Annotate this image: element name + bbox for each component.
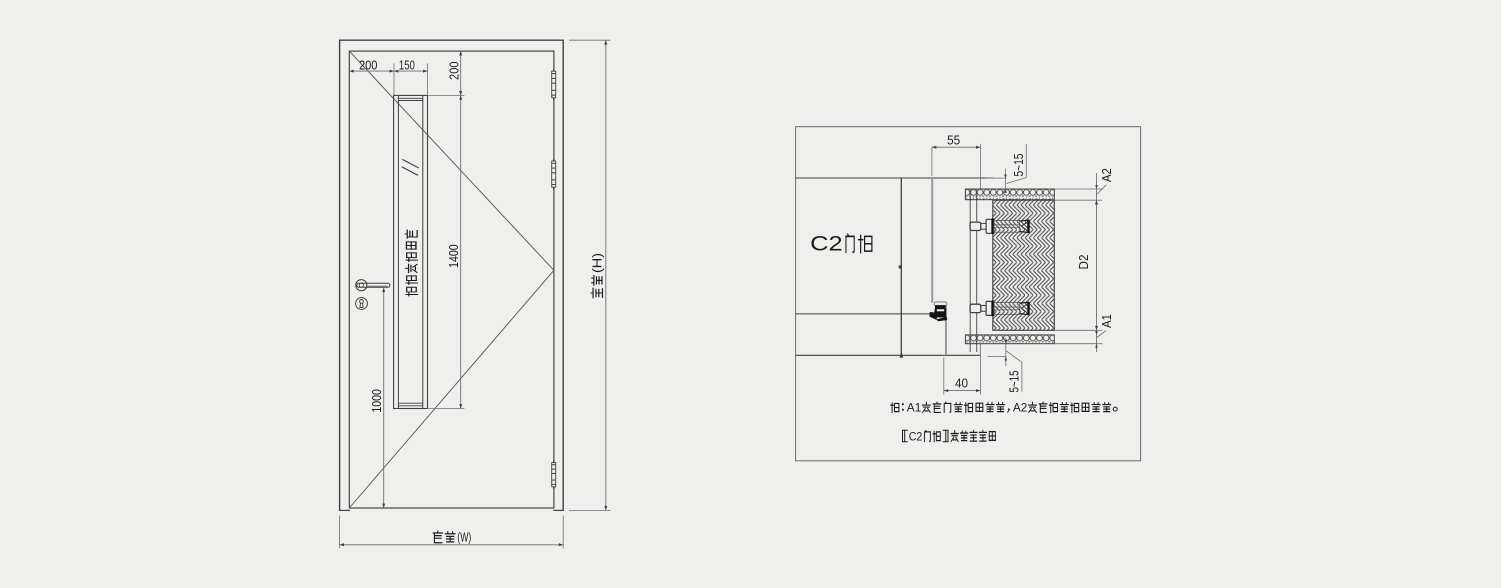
- svg-text:D2: D2: [1077, 254, 1091, 269]
- svg-text:1000: 1000: [369, 389, 384, 413]
- svg-text:40: 40: [955, 376, 968, 390]
- svg-text:(W): (W): [457, 529, 471, 544]
- svg-text:1400: 1400: [446, 244, 461, 268]
- svg-text:2: 2: [1021, 401, 1028, 415]
- svg-text:5~15: 5~15: [1012, 153, 1026, 176]
- svg-text:1: 1: [915, 401, 922, 415]
- svg-text:(H): (H): [590, 253, 605, 273]
- svg-text:C2: C2: [810, 233, 843, 256]
- svg-text:5~15: 5~15: [1008, 370, 1022, 392]
- svg-text:C2: C2: [909, 429, 923, 443]
- svg-text:A: A: [907, 401, 915, 415]
- svg-text:A1: A1: [1100, 314, 1114, 328]
- svg-text:200: 200: [446, 61, 461, 80]
- svg-text:55: 55: [947, 133, 960, 147]
- svg-text:200: 200: [359, 57, 378, 72]
- svg-text:A: A: [1013, 401, 1021, 415]
- svg-text:A2: A2: [1100, 168, 1114, 182]
- svg-text:150: 150: [399, 57, 415, 72]
